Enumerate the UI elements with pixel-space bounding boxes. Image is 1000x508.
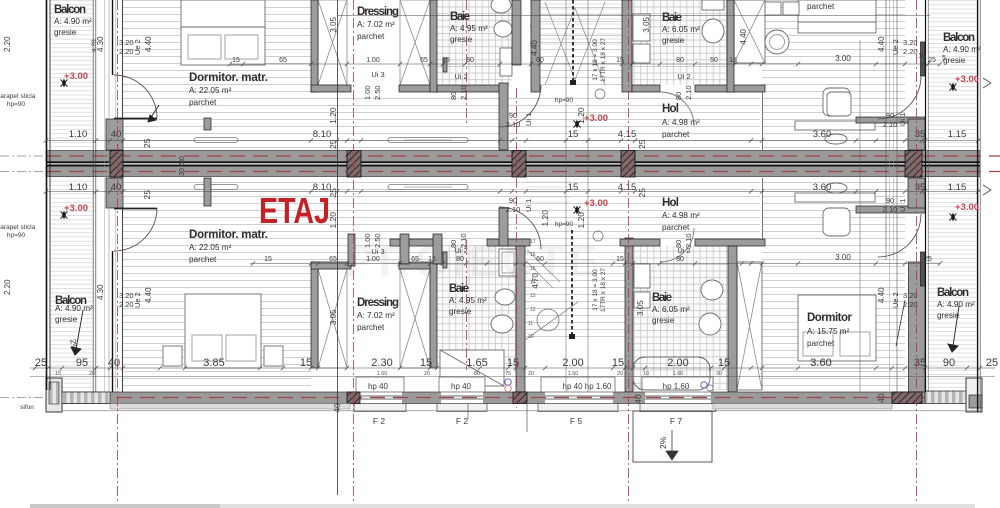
svg-text:Ui 2: Ui 2 xyxy=(454,72,467,81)
svg-text:Dormitor. matr.: Dormitor. matr. xyxy=(189,229,268,241)
svg-text:ETAJ: ETAJ xyxy=(259,190,330,231)
svg-text:20: 20 xyxy=(528,371,534,377)
svg-text:80: 80 xyxy=(449,92,458,100)
svg-text:2.20: 2.20 xyxy=(119,47,134,56)
svg-text:80: 80 xyxy=(466,57,474,64)
svg-text:parchet: parchet xyxy=(189,98,217,107)
svg-text:40: 40 xyxy=(108,357,120,369)
svg-text:2.20: 2.20 xyxy=(3,36,12,52)
svg-text:15: 15 xyxy=(616,256,624,263)
svg-text:Balcon: Balcon xyxy=(937,287,969,299)
svg-text:A: 4.98 m²: A: 4.98 m² xyxy=(662,211,700,220)
svg-text:+3.00: +3.00 xyxy=(955,202,979,213)
svg-text:Ui 1: Ui 1 xyxy=(898,113,907,126)
svg-text:1.15: 1.15 xyxy=(948,129,967,140)
svg-text:3.05: 3.05 xyxy=(642,16,651,32)
svg-text:hp=90: hp=90 xyxy=(7,101,26,108)
svg-text:1.60: 1.60 xyxy=(377,371,388,377)
svg-text:+3.00: +3.00 xyxy=(584,113,608,124)
svg-text:Balcon: Balcon xyxy=(54,4,86,16)
svg-text:3.85: 3.85 xyxy=(203,357,224,369)
svg-text:10: 10 xyxy=(643,371,649,377)
svg-text:2.20: 2.20 xyxy=(903,47,918,56)
svg-text:2.30: 2.30 xyxy=(371,357,392,369)
svg-text:25: 25 xyxy=(986,357,998,369)
svg-text:15: 15 xyxy=(300,357,312,369)
svg-text:80: 80 xyxy=(676,256,684,263)
svg-text:2.10: 2.10 xyxy=(506,120,521,129)
svg-text:2.50: 2.50 xyxy=(373,233,382,248)
svg-text:12: 12 xyxy=(530,307,536,313)
svg-text:4.40: 4.40 xyxy=(739,28,748,44)
svg-text:Dormitor: Dormitor xyxy=(807,312,853,324)
svg-text:2.10: 2.10 xyxy=(883,120,898,129)
svg-text:hp 40: hp 40 xyxy=(368,382,389,391)
svg-text:15: 15 xyxy=(718,357,730,369)
svg-text:gresie: gresie xyxy=(449,307,472,316)
svg-text:1.00: 1.00 xyxy=(366,256,380,263)
svg-text:60: 60 xyxy=(536,256,544,263)
svg-text:gresie: gresie xyxy=(943,56,966,65)
svg-text:F 7: F 7 xyxy=(670,416,683,426)
svg-text:25: 25 xyxy=(35,357,47,369)
svg-text:+3.00: +3.00 xyxy=(955,74,979,85)
svg-text:A: 4.95 m²: A: 4.95 m² xyxy=(450,24,488,33)
svg-text:hp 40: hp 40 xyxy=(451,382,472,391)
svg-text:2.10: 2.10 xyxy=(684,85,693,100)
svg-text:3.60: 3.60 xyxy=(810,357,831,369)
svg-text:Hol: Hol xyxy=(662,197,679,209)
svg-text:4.40: 4.40 xyxy=(877,287,886,303)
svg-text:65: 65 xyxy=(411,256,419,263)
svg-text:2.10: 2.10 xyxy=(684,233,693,248)
svg-text:17 x 18 = 3.00: 17 x 18 = 3.00 xyxy=(592,39,599,81)
svg-text:20: 20 xyxy=(424,371,430,377)
svg-text:gresie: gresie xyxy=(662,36,685,45)
svg-text:2.00: 2.00 xyxy=(667,357,688,369)
svg-text:2.10: 2.10 xyxy=(883,205,898,214)
svg-text:25: 25 xyxy=(924,256,932,263)
svg-text:Ue 2: Ue 2 xyxy=(891,292,900,308)
svg-text:17TR x 18 x 27: 17TR x 18 x 27 xyxy=(600,38,607,82)
svg-text:parchet: parchet xyxy=(357,32,385,41)
svg-text:65: 65 xyxy=(329,256,337,263)
svg-text:30: 30 xyxy=(179,168,186,176)
svg-text:Ue 2: Ue 2 xyxy=(133,292,142,308)
svg-text:2.00: 2.00 xyxy=(562,357,583,369)
svg-text:1.20: 1.20 xyxy=(540,210,550,227)
svg-text:hp=90: hp=90 xyxy=(555,221,574,228)
svg-text:1.00: 1.00 xyxy=(366,57,380,64)
svg-text:Ui 2: Ui 2 xyxy=(677,72,690,81)
svg-text:4.40: 4.40 xyxy=(144,287,153,303)
svg-text:1.60: 1.60 xyxy=(673,371,684,377)
svg-text:15: 15 xyxy=(420,357,432,369)
svg-text:3.05: 3.05 xyxy=(329,16,338,32)
svg-text:17TR x 18 x 27: 17TR x 18 x 27 xyxy=(600,268,607,312)
svg-text:3.20: 3.20 xyxy=(903,291,918,300)
svg-text:A: 6.05 m²: A: 6.05 m² xyxy=(652,305,690,314)
svg-text:A: 6.05 m²: A: 6.05 m² xyxy=(662,25,700,34)
svg-text:F 2: F 2 xyxy=(373,416,386,426)
svg-text:Ue 2: Ue 2 xyxy=(891,39,900,55)
svg-text:A: 15.75 m²: A: 15.75 m² xyxy=(807,327,850,336)
svg-text:F 5: F 5 xyxy=(570,416,583,426)
svg-text:hp 40 hp 1.60: hp 40 hp 1.60 xyxy=(563,382,612,391)
svg-text:parchet: parchet xyxy=(662,130,690,139)
svg-text:Baie: Baie xyxy=(450,11,470,23)
svg-text:gresie: gresie xyxy=(54,28,77,37)
svg-text:1.10: 1.10 xyxy=(69,129,88,140)
svg-text:20: 20 xyxy=(617,371,623,377)
svg-text:A: 22.05 m²: A: 22.05 m² xyxy=(189,243,232,252)
svg-text:40: 40 xyxy=(876,393,886,403)
svg-text:+3.00: +3.00 xyxy=(64,203,88,214)
svg-text:2.10: 2.10 xyxy=(506,205,521,214)
svg-text:Dressing: Dressing xyxy=(357,297,399,309)
svg-text:40: 40 xyxy=(111,182,122,193)
svg-text:Ui 1: Ui 1 xyxy=(524,113,533,126)
svg-text:4.30: 4.30 xyxy=(96,284,105,300)
svg-text:Baie: Baie xyxy=(449,283,469,295)
svg-text:gresie: gresie xyxy=(450,35,473,44)
svg-text:PROIECTE: PROIECTE xyxy=(345,237,602,286)
svg-text:parchet: parchet xyxy=(189,255,217,264)
svg-text:3.20: 3.20 xyxy=(119,291,134,300)
svg-text:15: 15 xyxy=(612,357,624,369)
svg-text:25: 25 xyxy=(928,57,936,64)
svg-text:50: 50 xyxy=(710,57,718,64)
svg-text:+3.00: +3.00 xyxy=(584,198,608,209)
svg-text:2%: 2% xyxy=(658,436,668,449)
svg-text:3.60: 3.60 xyxy=(813,182,832,193)
svg-text:13: 13 xyxy=(530,293,536,299)
svg-text:95: 95 xyxy=(76,357,88,369)
svg-text:65: 65 xyxy=(420,57,428,64)
svg-text:hp 1.60: hp 1.60 xyxy=(663,382,690,391)
svg-text:parchet: parchet xyxy=(357,323,385,332)
svg-text:Ue 2: Ue 2 xyxy=(133,39,142,55)
svg-text:1.65: 1.65 xyxy=(466,357,487,369)
svg-text:A: 7.02 m²: A: 7.02 m² xyxy=(357,311,395,320)
svg-text:A: 4.90 m²: A: 4.90 m² xyxy=(943,45,981,54)
svg-text:Ui 1: Ui 1 xyxy=(524,199,533,212)
svg-text:3.05: 3.05 xyxy=(636,300,645,316)
svg-text:Baie: Baie xyxy=(662,12,682,24)
svg-text:Dressing: Dressing xyxy=(357,6,399,18)
svg-text:parapet sticla: parapet sticla xyxy=(0,93,36,100)
svg-text:Baie: Baie xyxy=(652,292,672,304)
svg-text:25: 25 xyxy=(637,139,647,149)
svg-text:4.70: 4.70 xyxy=(531,273,540,289)
svg-text:A: 4.90 m²: A: 4.90 m² xyxy=(54,17,92,26)
svg-text:1.00: 1.00 xyxy=(363,85,372,100)
svg-text:80: 80 xyxy=(676,57,684,64)
svg-text:2.50: 2.50 xyxy=(373,85,382,100)
svg-text:80: 80 xyxy=(474,371,480,377)
svg-text:4.30: 4.30 xyxy=(96,36,105,52)
svg-text:A: 4.95 m²: A: 4.95 m² xyxy=(449,296,487,305)
svg-text:90: 90 xyxy=(509,111,517,120)
svg-text:25: 25 xyxy=(142,138,152,148)
svg-text:A: 4.90 m²: A: 4.90 m² xyxy=(55,304,93,313)
svg-text:hp=90: hp=90 xyxy=(555,97,574,104)
svg-text:40: 40 xyxy=(111,129,122,140)
svg-text:80: 80 xyxy=(674,240,683,248)
svg-text:3.20: 3.20 xyxy=(903,38,918,47)
svg-text:10: 10 xyxy=(528,334,534,340)
svg-text:4.40: 4.40 xyxy=(877,36,886,52)
svg-text:parapet sticla: parapet sticla xyxy=(0,224,36,231)
svg-text:4.40: 4.40 xyxy=(144,36,153,52)
svg-text:gresie: gresie xyxy=(55,315,78,324)
svg-text:gresie: gresie xyxy=(652,316,675,325)
svg-text:1.10: 1.10 xyxy=(69,182,88,193)
svg-text:90: 90 xyxy=(886,196,894,205)
svg-text:3.00: 3.00 xyxy=(835,54,851,63)
svg-text:3.60: 3.60 xyxy=(813,129,832,140)
svg-text:15: 15 xyxy=(568,129,579,140)
svg-text:4.15: 4.15 xyxy=(618,182,637,193)
svg-text:Hol: Hol xyxy=(662,103,679,115)
svg-text:35: 35 xyxy=(914,357,926,369)
svg-text:15: 15 xyxy=(232,57,240,64)
svg-text:11: 11 xyxy=(528,321,533,327)
svg-text:parchet: parchet xyxy=(662,223,690,232)
svg-text:A: 22.05 m²: A: 22.05 m² xyxy=(189,86,232,95)
svg-text:2.20: 2.20 xyxy=(903,300,918,309)
svg-text:4.15: 4.15 xyxy=(618,129,637,140)
svg-text:1.20: 1.20 xyxy=(328,107,338,124)
svg-text:75: 75 xyxy=(505,371,511,377)
svg-text:25: 25 xyxy=(142,190,152,200)
svg-text:3.00: 3.00 xyxy=(835,253,851,262)
svg-text:40: 40 xyxy=(633,394,643,404)
svg-text:Balcon: Balcon xyxy=(943,32,975,44)
svg-text:gresie: gresie xyxy=(937,311,960,320)
svg-text:25: 25 xyxy=(637,188,647,198)
svg-text:5: 5 xyxy=(179,162,186,166)
svg-text:1.20: 1.20 xyxy=(576,212,586,229)
svg-text:80: 80 xyxy=(449,240,458,248)
svg-text:15: 15 xyxy=(729,57,737,64)
svg-text:20: 20 xyxy=(89,371,95,377)
svg-text:80: 80 xyxy=(456,256,464,263)
svg-text:parchet: parchet xyxy=(807,339,835,348)
svg-text:2.20: 2.20 xyxy=(3,279,12,295)
svg-text:15: 15 xyxy=(616,57,624,64)
svg-text:15: 15 xyxy=(55,371,61,377)
svg-text:F 2: F 2 xyxy=(456,416,469,426)
svg-text:80: 80 xyxy=(674,92,683,100)
svg-text:15: 15 xyxy=(428,256,436,263)
svg-text:1.00: 1.00 xyxy=(363,233,372,248)
svg-text:90: 90 xyxy=(943,357,955,369)
svg-text:15: 15 xyxy=(442,57,450,64)
svg-text:Dormitor. matr.: Dormitor. matr. xyxy=(189,72,268,84)
svg-text:parchet: parchet xyxy=(807,2,835,11)
svg-text:15: 15 xyxy=(264,256,272,263)
svg-text:3.05: 3.05 xyxy=(329,309,338,325)
svg-text:A: 4.90 m²: A: 4.90 m² xyxy=(937,300,975,309)
svg-text:A: 4.98 m²: A: 4.98 m² xyxy=(662,118,700,127)
svg-text:17 x 18 = 3.00: 17 x 18 = 3.00 xyxy=(592,269,599,311)
svg-text:15: 15 xyxy=(568,182,579,193)
svg-text:40: 40 xyxy=(332,403,342,413)
svg-text:4.40: 4.40 xyxy=(530,40,539,56)
svg-text:2.20: 2.20 xyxy=(119,300,134,309)
svg-text:15: 15 xyxy=(507,357,519,369)
svg-text:10: 10 xyxy=(918,53,926,60)
svg-text:60: 60 xyxy=(536,57,544,64)
svg-text:sifon: sifon xyxy=(20,404,34,411)
svg-text:90: 90 xyxy=(509,196,517,205)
svg-text:8.10: 8.10 xyxy=(313,129,332,140)
svg-text:90: 90 xyxy=(886,111,894,120)
svg-text:Ui 1: Ui 1 xyxy=(898,199,907,212)
svg-text:+3.00: +3.00 xyxy=(64,71,88,82)
svg-text:1.60: 1.60 xyxy=(568,371,579,377)
svg-text:A: 7.02 m²: A: 7.02 m² xyxy=(357,20,395,29)
svg-text:30: 30 xyxy=(716,371,722,377)
svg-text:1.15: 1.15 xyxy=(948,182,967,193)
svg-text:hp=90: hp=90 xyxy=(7,232,26,239)
svg-text:Ui 3: Ui 3 xyxy=(371,70,384,79)
svg-text:25: 25 xyxy=(328,139,338,149)
svg-text:3.20: 3.20 xyxy=(119,38,134,47)
svg-text:65: 65 xyxy=(279,57,287,64)
